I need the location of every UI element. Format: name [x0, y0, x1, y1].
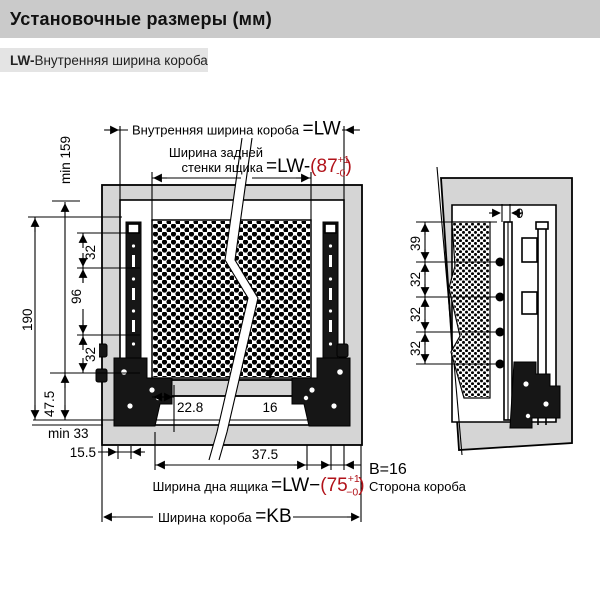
- dim-bottom-width-label: Ширина дна ящика: [153, 479, 269, 494]
- mounting-hole: [496, 258, 505, 267]
- dim-32-2-label: 32: [408, 307, 423, 322]
- dim-32-bottom-label: 32: [83, 347, 98, 362]
- dim-9-label: 9: [516, 206, 524, 221]
- dim-min33-label: min 33: [48, 426, 89, 441]
- dim-bottom-width-formula: =LW−(75+1−0): [271, 473, 365, 499]
- dim-47-5-label: 47.5: [42, 391, 57, 417]
- dim-32-top-label: 32: [83, 245, 98, 260]
- dim-16-label: 16: [262, 400, 277, 415]
- dim-back-wall-label2: стенки ящика: [182, 160, 264, 175]
- dim-32-3-label: 32: [408, 341, 423, 356]
- subtitle-text: Внутренняя ширина короба: [34, 53, 207, 68]
- dim-box-width-label: Ширина короба =KB: [158, 506, 292, 527]
- subtitle-bar: LW-Внутренняя ширина короба: [0, 48, 208, 72]
- note-side-label: Сторона короба: [369, 479, 467, 494]
- fixing-clip: [337, 344, 348, 357]
- dim-190-label: 190: [20, 308, 35, 331]
- mounting-hole: [496, 360, 505, 369]
- dim-37-5-label: 37.5: [252, 447, 278, 462]
- dim-22-8-label: 22.8: [177, 400, 203, 415]
- page-header: Установочные размеры (мм): [0, 0, 600, 38]
- mounting-hole: [496, 328, 505, 337]
- dim-inner-width-label: Внутренняя ширина короба =LW: [132, 119, 341, 140]
- dim-back-wall-label1: Ширина задней: [169, 145, 263, 160]
- side-back-panel-edge: [504, 222, 512, 420]
- dim-96-label: 96: [69, 289, 84, 304]
- side-view: 9 39 32 32 32: [408, 167, 572, 455]
- technical-drawing: Внутренняя ширина короба =LW Ширина задн…: [0, 0, 600, 600]
- dim-min159-label: min 159: [58, 136, 73, 184]
- dim-15-5-label: 15.5: [70, 445, 96, 460]
- page-title: Установочные размеры (мм): [0, 9, 272, 30]
- mounting-hole: [496, 293, 505, 302]
- dim-39-label: 39: [408, 236, 423, 251]
- fixing-clip: [96, 369, 107, 382]
- subtitle-code: LW-: [0, 53, 34, 68]
- dim-32-1-label: 32: [408, 272, 423, 287]
- front-view: Внутренняя ширина короба =LW Ширина задн…: [20, 119, 467, 528]
- dim-back-wall-formula: =LW-(87+1-0): [266, 154, 352, 180]
- page: { "header": { "title": "Установочные раз…: [0, 0, 600, 600]
- note-b16: B=16: [369, 461, 407, 478]
